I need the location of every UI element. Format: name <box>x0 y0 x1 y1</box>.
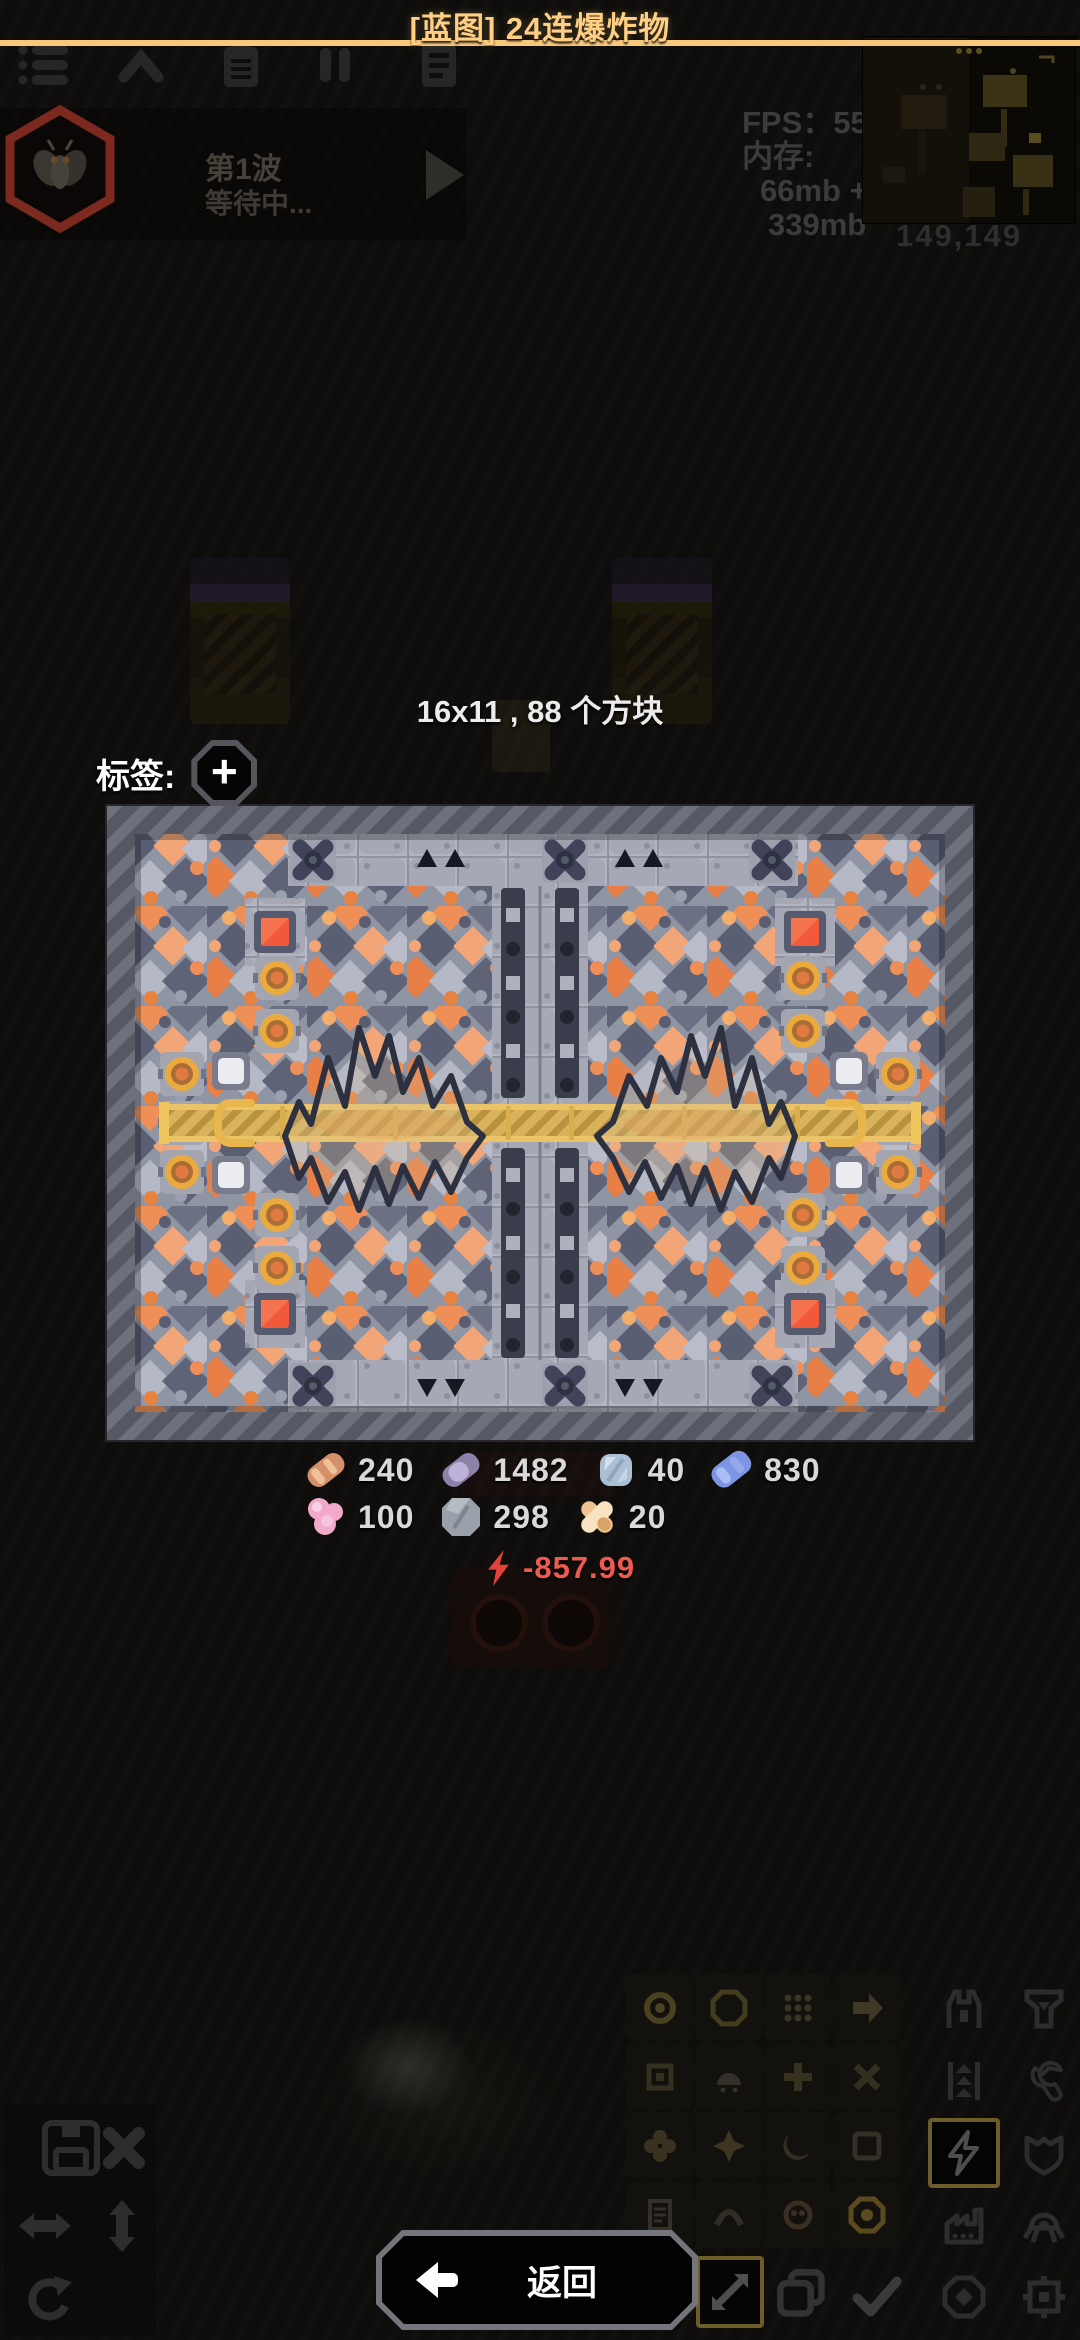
block-slot[interactable] <box>695 2043 762 2110</box>
schematic-preview <box>107 806 973 1440</box>
block-slot[interactable] <box>626 2043 693 2110</box>
minimap[interactable] <box>862 36 1076 224</box>
surge-alloy-icon <box>574 1494 620 1540</box>
category-effect[interactable] <box>928 2262 1000 2332</box>
block-slot[interactable] <box>833 2112 900 2179</box>
back-arrow-icon <box>412 2257 462 2303</box>
blueprint-title: [蓝图] 24连爆炸物 <box>0 3 1080 48</box>
save-icon[interactable] <box>42 2120 100 2176</box>
cost-amount: 240 <box>358 1452 414 1489</box>
power-row: -857.99 <box>483 1549 635 1587</box>
rotate-icon[interactable] <box>24 2274 72 2322</box>
plus-icon: + <box>211 748 238 794</box>
block-slot[interactable] <box>833 2181 900 2248</box>
block-slot[interactable] <box>764 2043 831 2110</box>
cost-amount: 830 <box>764 1452 820 1489</box>
block-slot[interactable] <box>764 1974 831 2041</box>
block-slot[interactable] <box>833 1974 900 2041</box>
play-wave-button[interactable] <box>424 148 466 202</box>
chevron-up-icon[interactable] <box>118 44 218 86</box>
cost-titanium: 830 <box>709 1447 820 1493</box>
lead-icon <box>438 1447 484 1493</box>
clipboard-icon[interactable] <box>218 44 318 86</box>
cost-amount: 40 <box>648 1452 686 1489</box>
performance-readout: FPS：55 内存: 66mb + 339mb <box>742 106 868 242</box>
cost-lead: 1482 <box>438 1447 568 1493</box>
flip-vertical-icon[interactable] <box>100 2196 144 2256</box>
minimap-coordinates: 149,149 <box>896 218 1080 254</box>
top-toolbar <box>18 44 518 86</box>
notebook-icon[interactable] <box>418 44 518 86</box>
category-logic[interactable] <box>1008 2262 1080 2332</box>
block-slot[interactable] <box>833 2043 900 2110</box>
category-distribution[interactable] <box>928 2046 1000 2116</box>
category-turret[interactable] <box>928 1974 1000 2044</box>
flip-horizontal-icon[interactable] <box>16 2204 74 2248</box>
power-icon <box>483 1549 513 1587</box>
block-slot[interactable] <box>626 1974 693 2041</box>
tags-row: 标签: + <box>96 740 257 806</box>
cost-graphite: 298 <box>438 1494 549 1540</box>
confirm-icon[interactable] <box>846 2268 908 2324</box>
schematic-size-info: 16x11 , 88 个方块 <box>0 686 1080 731</box>
close-icon[interactable] <box>102 2126 146 2170</box>
titanium-icon <box>709 1447 755 1493</box>
boss-hexagon-icon <box>0 102 144 242</box>
power-value: -857.99 <box>523 1550 635 1586</box>
cost-amount: 100 <box>358 1499 414 1536</box>
back-button-label: 返回 <box>462 2255 662 2306</box>
block-slot[interactable] <box>764 2112 831 2179</box>
cost-metaglass: 40 <box>593 1447 686 1493</box>
category-crafting[interactable] <box>1008 2046 1080 2116</box>
cost-amount: 1482 <box>493 1452 568 1489</box>
block-slot[interactable] <box>695 2112 762 2179</box>
game-screen: 149,149 [蓝图] 24连爆炸物 <box>0 0 1080 2340</box>
wave-panel: 第1波 等待中... <box>0 108 468 242</box>
category-production[interactable] <box>1008 1974 1080 2044</box>
block-slot[interactable] <box>695 1974 762 2041</box>
metaglass-icon <box>593 1447 639 1493</box>
copy-icon[interactable] <box>772 2264 832 2324</box>
tags-label: 标签: <box>96 749 175 798</box>
copper-icon <box>303 1447 349 1493</box>
fps-text: FPS：55 <box>742 106 868 140</box>
block-grid <box>626 1974 900 2248</box>
wave-status: 等待中... <box>205 182 312 222</box>
cost-surge-alloy: 20 <box>574 1494 667 1540</box>
resize-tool-button[interactable] <box>696 2256 764 2328</box>
phase-fabric-icon <box>303 1494 349 1540</box>
background-explosion-sprite <box>240 1960 640 2240</box>
memory-label: 内存: <box>742 140 868 174</box>
block-slot[interactable] <box>626 2112 693 2179</box>
memory-used: 66mb + <box>760 174 868 208</box>
graphite-icon <box>438 1494 484 1540</box>
category-power[interactable] <box>928 2118 1000 2188</box>
block-slot[interactable] <box>695 2181 762 2248</box>
cost-copper: 240 <box>303 1447 414 1493</box>
cost-row-2: 100 298 20 <box>303 1494 690 1540</box>
block-slot[interactable] <box>764 2181 831 2248</box>
category-factory[interactable] <box>928 2190 1000 2260</box>
add-tag-button[interactable]: + <box>191 740 257 806</box>
cost-row-1: 240 1482 40 <box>303 1447 845 1493</box>
pause-icon[interactable] <box>318 44 418 86</box>
cost-amount: 298 <box>493 1499 549 1536</box>
category-defense[interactable] <box>1008 2118 1080 2188</box>
edit-tools-panel <box>4 2104 156 2336</box>
back-button[interactable]: 返回 <box>376 2230 698 2330</box>
menu-list-icon[interactable] <box>18 44 118 86</box>
category-units[interactable] <box>1008 2190 1080 2260</box>
cost-amount: 20 <box>629 1499 667 1536</box>
memory-total: 339mb <box>768 208 868 242</box>
cost-phase-fabric: 100 <box>303 1494 414 1540</box>
